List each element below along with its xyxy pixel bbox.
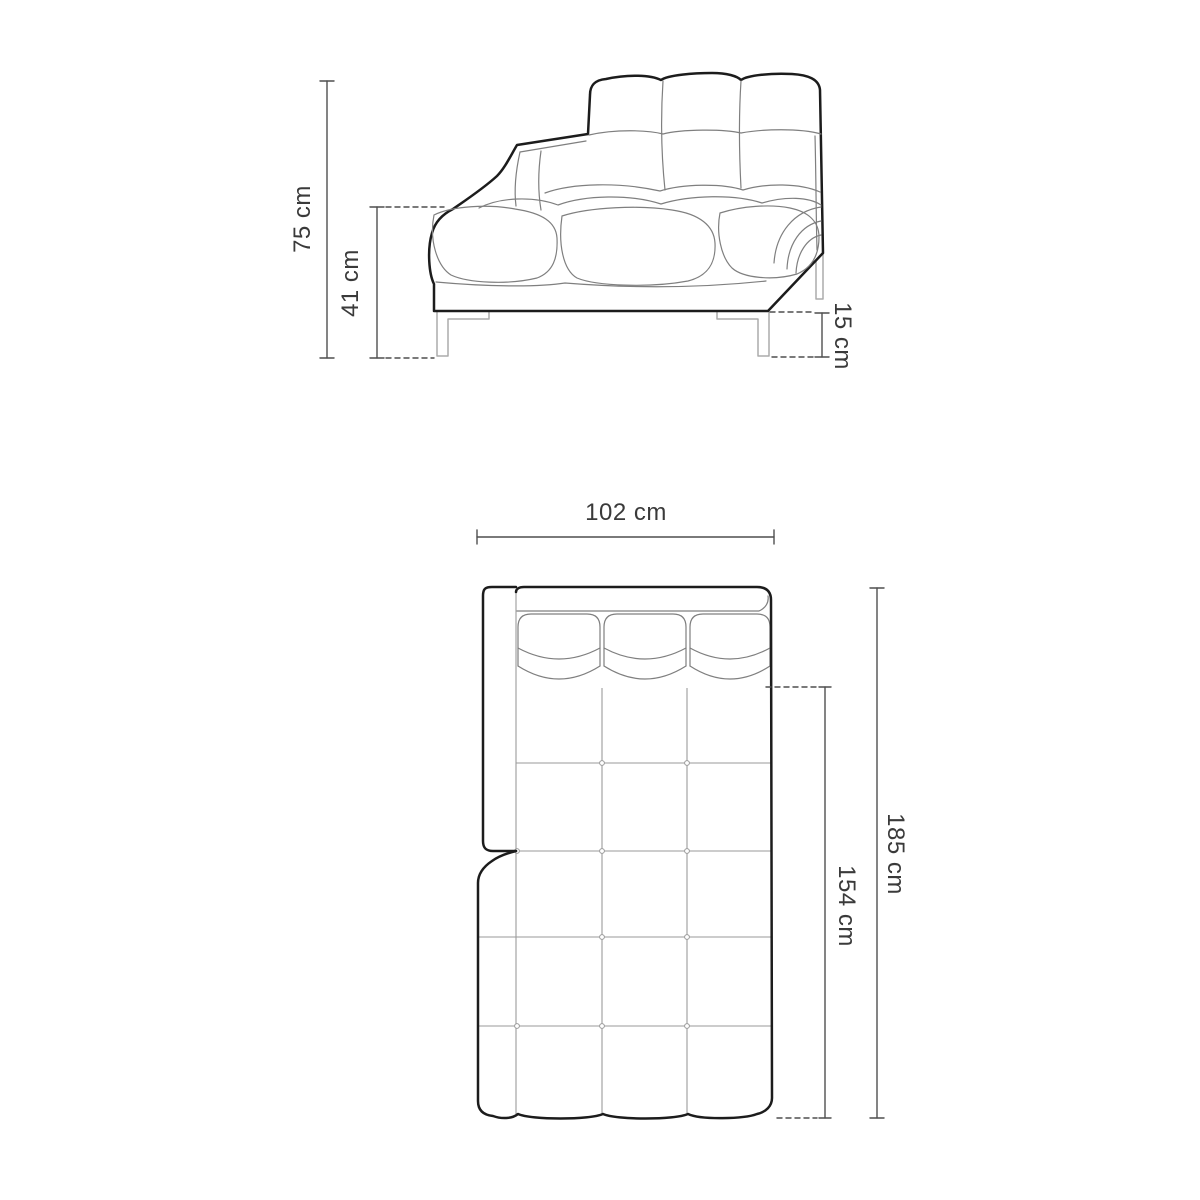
product-dimension-diagram: 75 cm 41 cm 15 cm 102 cm 185 cm 154 cm: [0, 0, 1200, 1200]
dimension-label-leg-height: 15 cm: [828, 302, 856, 370]
top-dimension-lines-dashed: [766, 687, 817, 1118]
dimension-label-seat-height: 41 cm: [337, 249, 365, 317]
side-view-drawing: [429, 73, 823, 356]
sofa-side-back-leg: [717, 312, 769, 356]
dimension-label-overall-height: 75 cm: [289, 185, 317, 253]
sofa-top-outline: [478, 587, 772, 1119]
back-cushion-scallop: [690, 666, 770, 679]
back-cushion: [518, 614, 600, 666]
dimension-label-seat-length: 154 cm: [832, 865, 860, 947]
backrest-bar-bottom: [517, 596, 768, 611]
back-cushion: [604, 614, 686, 666]
tuft-button: [600, 935, 605, 940]
top-view-drawing: [478, 587, 772, 1119]
tuft-button: [515, 1024, 520, 1029]
sofa-side-outline: [429, 73, 823, 311]
tuft-button: [600, 1024, 605, 1029]
back-cushion-scallop: [604, 648, 686, 659]
back-cushion-scallop: [518, 666, 600, 679]
back-cushion-scallop: [518, 648, 600, 659]
top-dimension-lines-solid: [477, 530, 884, 1118]
back-cushion: [690, 614, 770, 666]
sofa-top-details: [517, 596, 770, 679]
back-cushion-scallop: [690, 648, 770, 659]
back-cushion-scallop: [604, 666, 686, 679]
sofa-side-front-leg: [437, 312, 489, 356]
dimension-label-overall-length: 185 cm: [881, 813, 909, 895]
diagram-canvas: [0, 0, 1200, 1200]
tuft-button: [600, 849, 605, 854]
tuft-button: [685, 849, 690, 854]
sofa-top-arm: [483, 587, 516, 851]
sofa-top-body: [478, 587, 772, 1119]
sofa-top-tufting-grid: [478, 593, 771, 1114]
top-view-dimensions: [477, 530, 884, 1118]
tuft-button: [685, 761, 690, 766]
tuft-button: [600, 761, 605, 766]
dimension-label-width: 102 cm: [585, 499, 667, 527]
tuft-button: [685, 935, 690, 940]
tuft-button: [685, 1024, 690, 1029]
